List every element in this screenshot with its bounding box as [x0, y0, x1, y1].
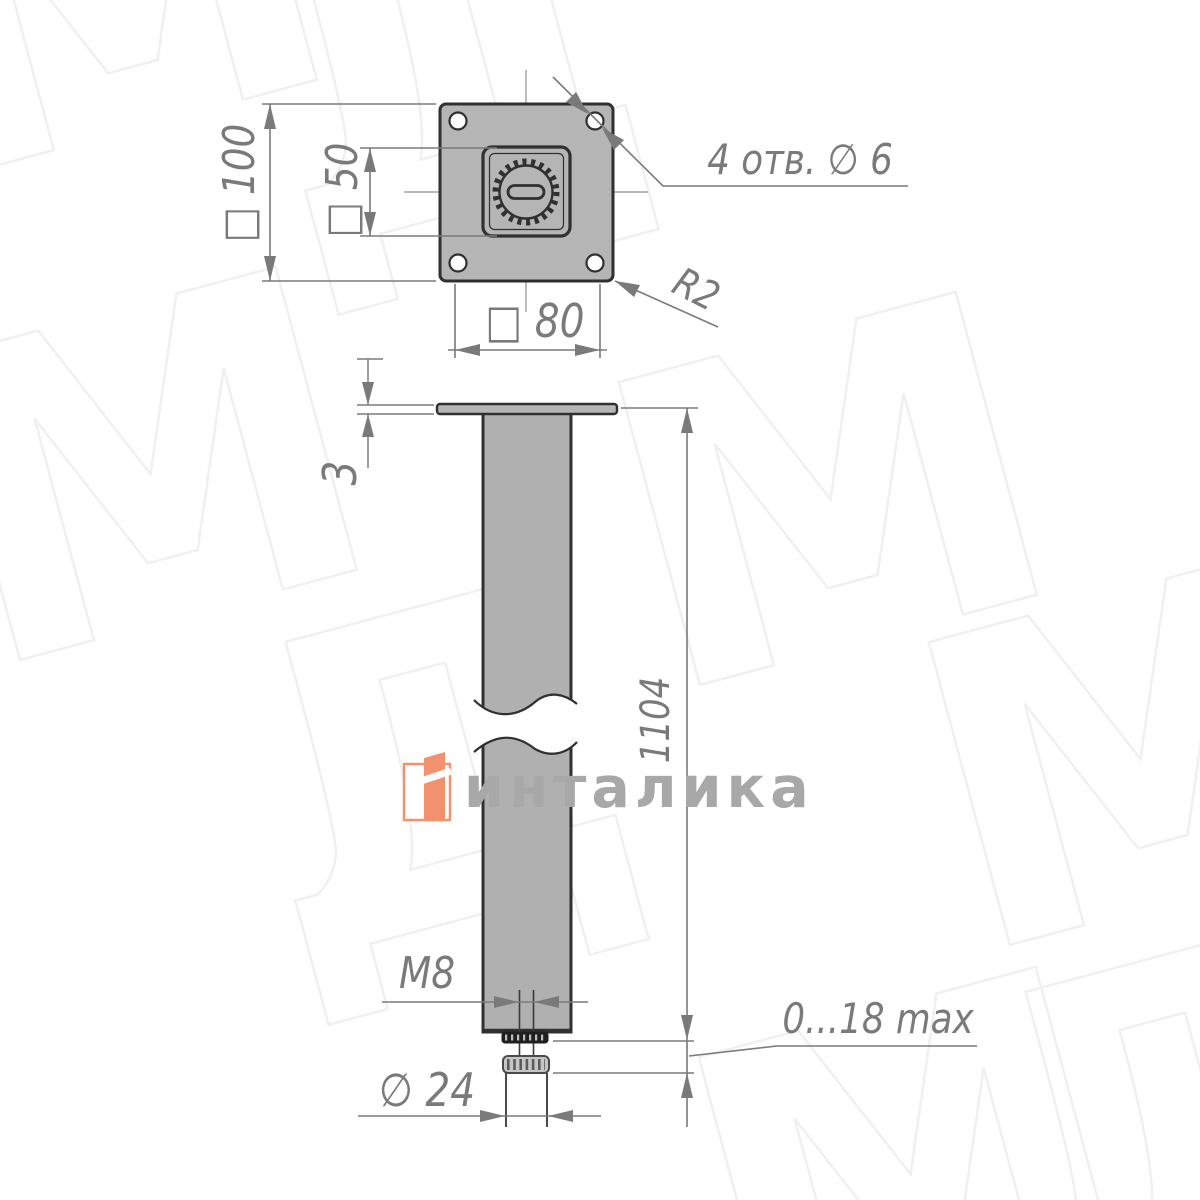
intalika-logo-icon [400, 748, 458, 828]
label-height-adjustment: 0...18 max [782, 998, 973, 1040]
dim-3-lines [357, 359, 434, 468]
dim-adjustment-lines [553, 1041, 977, 1098]
label-thread-size: M8 [399, 952, 455, 996]
brand-name: инталика [464, 754, 814, 822]
dim-hole-spacing: □ 80 [485, 298, 584, 344]
dim-plate-size: □ 100 [218, 124, 262, 243]
dim-foot-diameter: ∅ 24 [379, 1067, 475, 1113]
dim-inner-size: □ 50 [321, 143, 365, 238]
top-plate-edge [437, 404, 617, 414]
brand-logo: инталика [400, 748, 800, 834]
label-holes-note: 4 отв. ∅ 6 [707, 139, 893, 181]
drawing-canvas: М Д М М Д М М Д [0, 0, 1200, 1200]
dim-plate-thickness: 3 [317, 461, 363, 486]
technical-drawing [0, 0, 1200, 1200]
